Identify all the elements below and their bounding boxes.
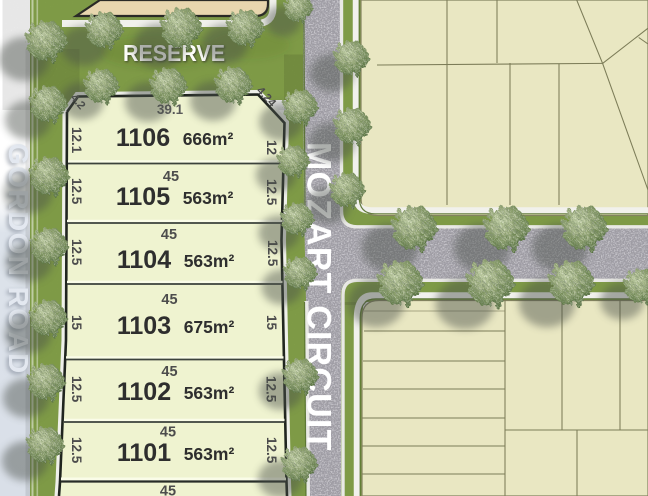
svg-text:1101: 1101	[117, 439, 171, 467]
svg-text:15: 15	[69, 315, 84, 331]
svg-text:12.1: 12.1	[69, 127, 84, 154]
svg-text:45: 45	[163, 169, 179, 185]
svg-text:563m²: 563m²	[184, 444, 235, 464]
svg-text:563m²: 563m²	[184, 383, 235, 403]
svg-text:1103: 1103	[117, 312, 171, 340]
svg-text:12.5: 12.5	[69, 437, 84, 464]
svg-text:45: 45	[160, 484, 176, 496]
svg-text:563m²: 563m²	[183, 188, 234, 208]
svg-text:675m²: 675m²	[184, 317, 235, 337]
svg-text:15: 15	[264, 315, 279, 331]
svg-text:12: 12	[264, 140, 279, 155]
svg-text:1102: 1102	[117, 378, 171, 406]
svg-text:1104: 1104	[117, 246, 171, 274]
svg-text:12.5: 12.5	[69, 178, 84, 205]
svg-text:1106: 1106	[116, 124, 170, 152]
svg-text:45: 45	[161, 364, 177, 380]
svg-text:1105: 1105	[116, 183, 170, 211]
svg-text:12.5: 12.5	[69, 376, 84, 403]
svg-text:12.5: 12.5	[69, 239, 84, 266]
svg-text:666m²: 666m²	[183, 129, 234, 149]
svg-text:563m²: 563m²	[184, 251, 235, 271]
svg-text:45: 45	[161, 292, 177, 308]
svg-text:45: 45	[161, 227, 177, 243]
svg-text:12.5: 12.5	[264, 437, 279, 464]
svg-text:45: 45	[160, 425, 176, 441]
